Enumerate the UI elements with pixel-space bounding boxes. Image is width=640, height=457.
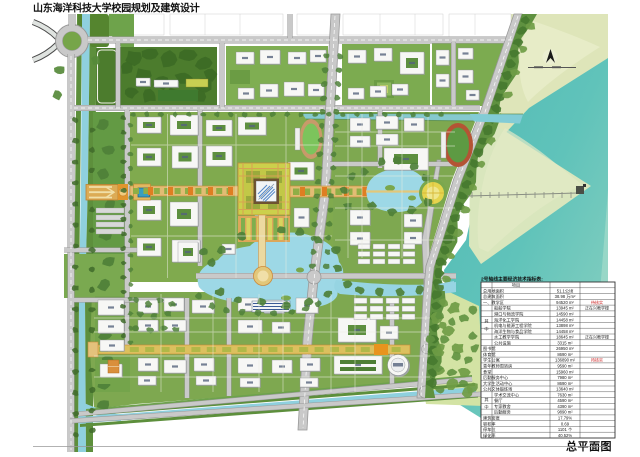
svg-text:9590 m²: 9590 m² (557, 364, 573, 369)
svg-text:136890 m²: 136890 m² (555, 358, 576, 363)
svg-text:正在兴教学楼: 正在兴教学楼 (585, 334, 609, 340)
svg-text:40.52%: 40.52% (558, 433, 572, 438)
svg-text:14590 m²: 14590 m² (556, 312, 574, 317)
svg-text:4590 m²: 4590 m² (557, 398, 573, 403)
svg-text:13898 m²: 13898 m² (556, 323, 574, 328)
svg-text:26950 m²: 26950 m² (556, 346, 574, 351)
svg-text:待核实: 待核实 (591, 357, 603, 363)
svg-text:13640 m²: 13640 m² (556, 387, 574, 392)
svg-text:7630 m²: 7630 m² (557, 392, 573, 397)
svg-text:3315 m²: 3315 m² (557, 340, 573, 345)
svg-text:绿化率: 绿化率 (483, 432, 496, 439)
svg-text:4390 m²: 4390 m² (557, 404, 573, 409)
svg-text:正在兴教学楼: 正在兴教学楼 (585, 305, 609, 311)
svg-text:中: 中 (484, 404, 488, 411)
svg-text:公共设施: 公共设施 (494, 339, 512, 346)
svg-text:中: 中 (484, 326, 488, 333)
svg-text:18645 m²: 18645 m² (556, 335, 574, 340)
svg-text:9890 m²: 9890 m² (557, 410, 573, 415)
svg-text:待核实: 待核实 (591, 299, 603, 305)
svg-text:山东海洋科技大学校园规划及建筑设计: 山东海洋科技大学校园规划及建筑设计 (33, 2, 200, 15)
svg-text:总平面图: 总平面图 (566, 439, 612, 452)
svg-text:17.79%: 17.79% (558, 416, 572, 421)
svg-text:15960 m²: 15960 m² (556, 369, 574, 374)
svg-text:13945 m²: 13945 m² (556, 306, 574, 311)
svg-text:0.69: 0.69 (561, 421, 570, 426)
svg-text:14458 m²: 14458 m² (556, 317, 574, 322)
svg-text:8690 m²: 8690 m² (557, 381, 573, 386)
svg-text:94520 m²: 94520 m² (556, 300, 574, 305)
svg-text:7980 m²: 7980 m² (557, 375, 573, 380)
svg-text:14458 m²: 14458 m² (556, 329, 574, 334)
svg-text:8690 m²: 8690 m² (557, 352, 573, 357)
svg-text:2号轴线主要经济技术指标表:: 2号轴线主要经济技术指标表: (481, 276, 543, 283)
svg-text:1101 个: 1101 个 (558, 427, 573, 432)
